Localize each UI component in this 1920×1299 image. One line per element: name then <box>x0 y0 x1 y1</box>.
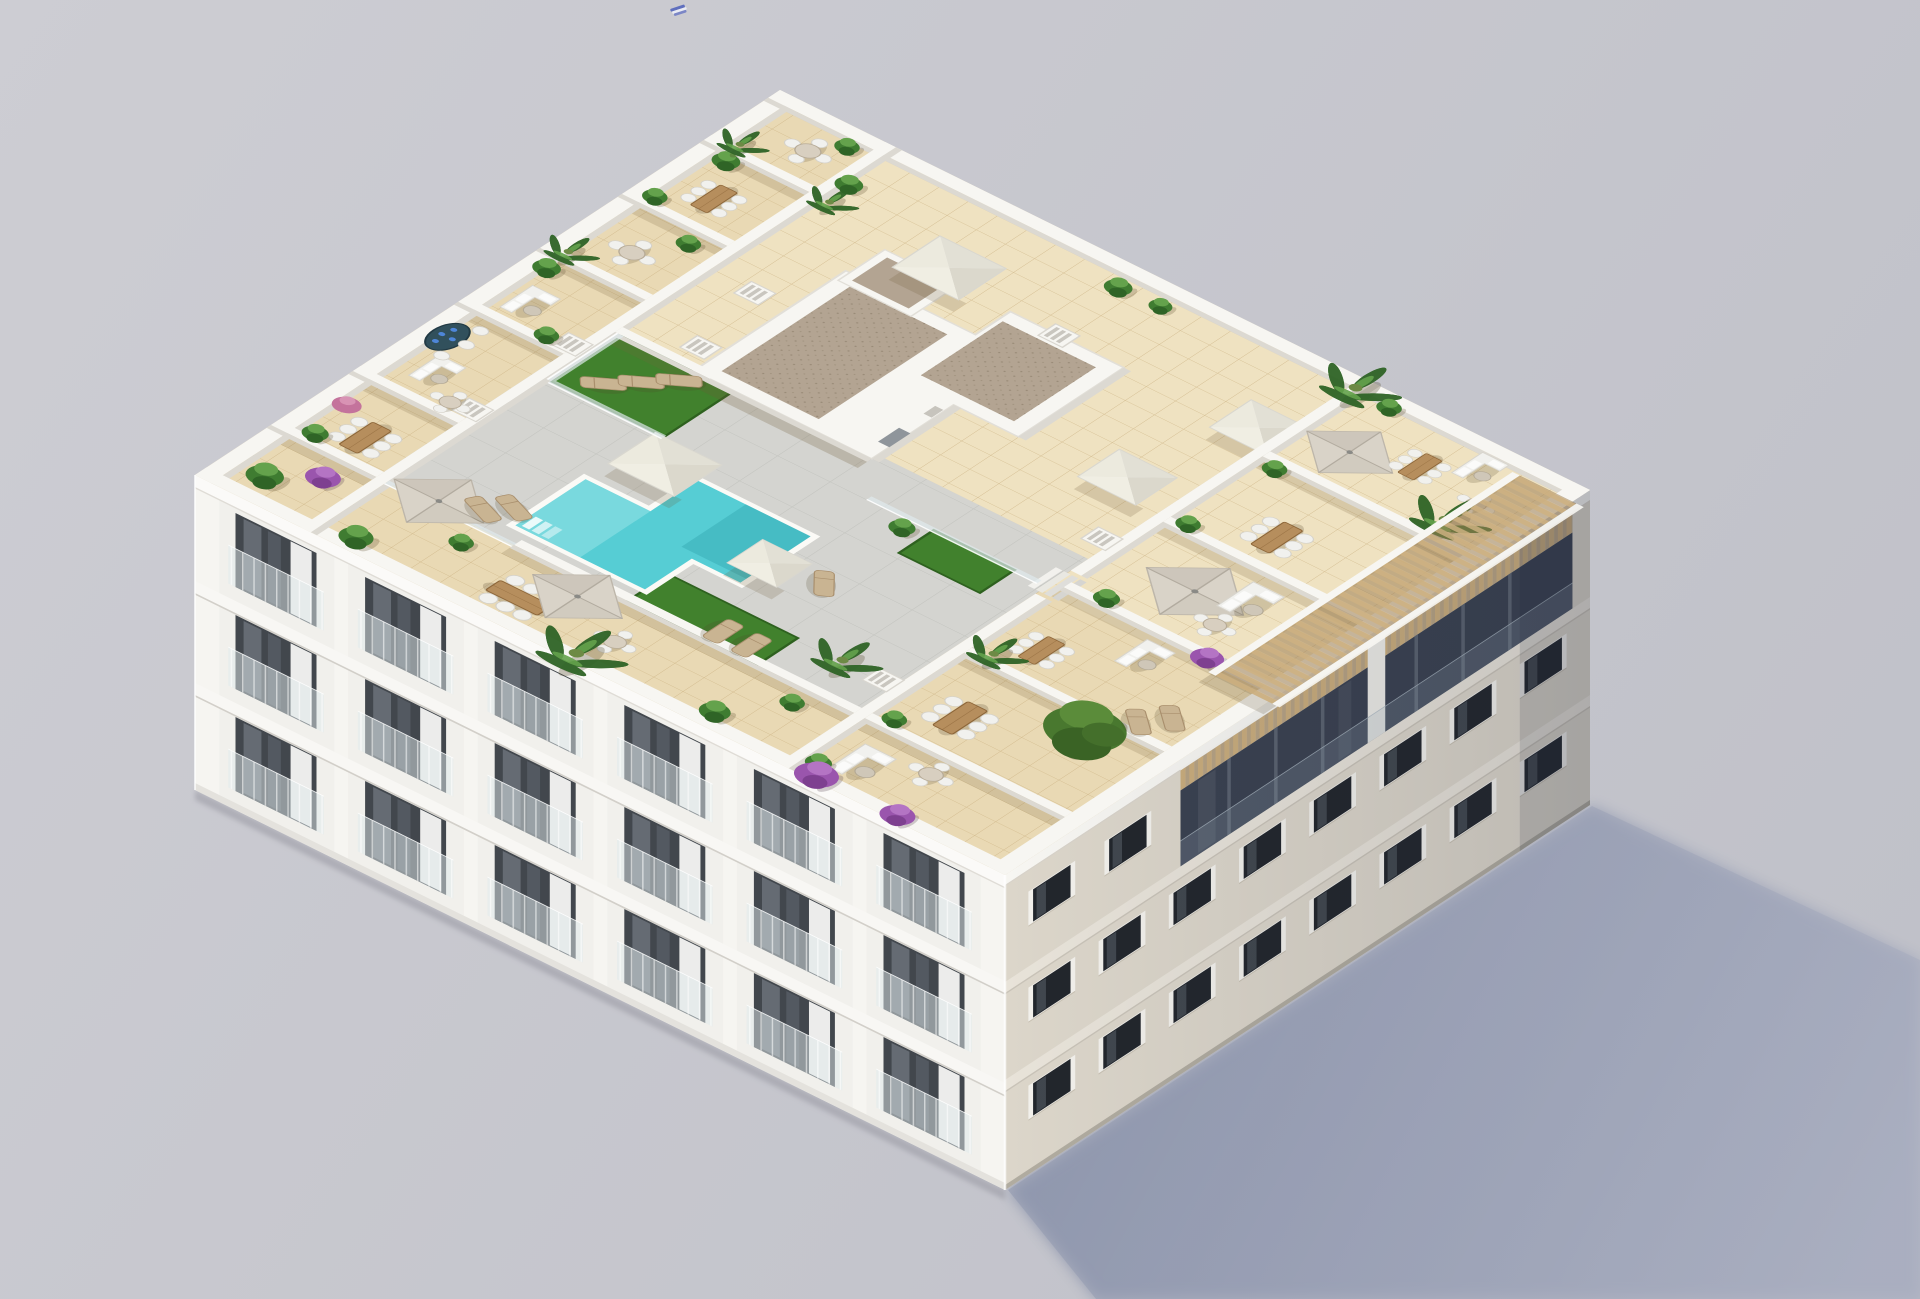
scene-render: Aerial 3D architectural render of an apa… <box>0 0 1920 1299</box>
render-stage: Aerial 3D architectural render of an apa… <box>0 0 1920 1299</box>
